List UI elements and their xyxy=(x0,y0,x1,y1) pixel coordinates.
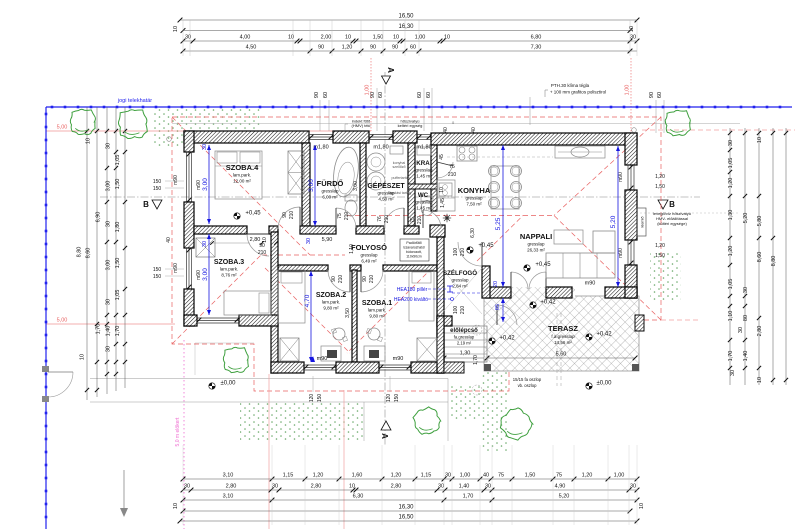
svg-text:10: 10 xyxy=(757,377,763,383)
svg-text:20: 20 xyxy=(493,281,499,287)
svg-text:30: 30 xyxy=(306,238,312,244)
svg-text:gresslap: gresslap xyxy=(465,196,483,201)
svg-text:m90: m90 xyxy=(173,175,179,185)
svg-text:gresslap: gresslap xyxy=(360,253,378,258)
svg-text:30: 30 xyxy=(272,484,278,490)
svg-text:8,80: 8,80 xyxy=(77,247,83,258)
svg-text:gresslap: gresslap xyxy=(415,200,433,205)
svg-text:210: 210 xyxy=(258,250,267,256)
svg-text:30: 30 xyxy=(630,35,636,41)
svg-text:2,80: 2,80 xyxy=(226,484,237,490)
svg-text:m90: m90 xyxy=(196,180,202,190)
svg-text:16,30: 16,30 xyxy=(398,505,414,511)
svg-text:80: 80 xyxy=(743,315,749,321)
svg-text:4,50 m²: 4,50 m² xyxy=(378,197,394,202)
svg-text:90: 90 xyxy=(392,45,398,51)
svg-text:gresslap: gresslap xyxy=(527,242,545,247)
svg-text:7,50 m²: 7,50 m² xyxy=(466,202,482,207)
svg-text:f.a gresslap: f.a gresslap xyxy=(551,334,575,339)
svg-text:100: 100 xyxy=(453,248,459,257)
svg-text:5,90: 5,90 xyxy=(322,237,333,243)
svg-text:10: 10 xyxy=(86,138,92,144)
svg-text:150: 150 xyxy=(317,394,323,403)
svg-text:30: 30 xyxy=(202,241,208,247)
svg-text:m90: m90 xyxy=(585,281,596,287)
svg-text:m90: m90 xyxy=(173,263,179,273)
svg-text:10: 10 xyxy=(757,137,763,143)
svg-text:2,80: 2,80 xyxy=(391,484,402,490)
svg-text:10: 10 xyxy=(393,35,399,41)
svg-text:1,00: 1,00 xyxy=(614,473,625,479)
svg-text:10: 10 xyxy=(345,35,351,41)
svg-text:±0,00: ±0,00 xyxy=(221,381,237,387)
svg-text:60: 60 xyxy=(378,92,384,98)
svg-text:2,00: 2,00 xyxy=(321,35,332,41)
svg-text:60: 60 xyxy=(417,92,423,98)
svg-text:SZÉLFOGÓ: SZÉLFOGÓ xyxy=(443,269,477,277)
svg-text:150: 150 xyxy=(394,394,400,403)
svg-text:1,50: 1,50 xyxy=(373,35,384,41)
svg-text:+ 100 mm grafitos polisztirol: + 100 mm grafitos polisztirol xyxy=(550,90,606,95)
svg-text:10: 10 xyxy=(80,354,86,360)
svg-text:GÉPÉSZET: GÉPÉSZET xyxy=(367,181,405,190)
svg-text:1,20: 1,20 xyxy=(728,178,734,189)
svg-text:30: 30 xyxy=(445,473,451,479)
svg-text:+0,45: +0,45 xyxy=(535,262,551,268)
svg-text:6,30: 6,30 xyxy=(470,228,476,238)
svg-text:60: 60 xyxy=(410,45,416,51)
svg-text:6,90: 6,90 xyxy=(96,212,102,223)
svg-text:5,00: 5,00 xyxy=(57,125,68,131)
svg-text:3,50: 3,50 xyxy=(345,308,351,318)
svg-text:FOLYOSÓ: FOLYOSÓ xyxy=(351,243,387,252)
svg-text:1,20: 1,20 xyxy=(655,174,665,180)
svg-text:5,25: 5,25 xyxy=(495,217,502,230)
svg-text:6,30: 6,30 xyxy=(353,494,364,500)
svg-text:16,50: 16,50 xyxy=(398,515,414,521)
svg-text:120: 120 xyxy=(309,394,315,403)
svg-text:90: 90 xyxy=(370,45,376,51)
svg-text:2,80: 2,80 xyxy=(311,484,322,490)
svg-text:8,60: 8,60 xyxy=(86,248,92,259)
svg-text:10: 10 xyxy=(439,187,445,193)
svg-text:3,00: 3,00 xyxy=(308,179,315,192)
svg-text:12,00 m²: 12,00 m² xyxy=(233,179,251,184)
svg-text:puffertartály: puffertartály xyxy=(392,176,411,180)
svg-text:bútorozott,: bútorozott, xyxy=(406,250,422,254)
svg-text:m1,80: m1,80 xyxy=(373,145,388,151)
svg-text:15/15 fa oszlop: 15/15 fa oszlop xyxy=(513,377,542,382)
svg-text:TERASZ: TERASZ xyxy=(548,324,578,333)
svg-text:1,05: 1,05 xyxy=(115,290,121,301)
svg-text:90: 90 xyxy=(362,276,368,282)
svg-text:vb. oszlop: vb. oszlop xyxy=(518,383,538,388)
svg-text:4,90: 4,90 xyxy=(555,484,566,490)
svg-text:1,40: 1,40 xyxy=(459,484,470,490)
svg-text:5,20: 5,20 xyxy=(610,215,617,228)
svg-text:B: B xyxy=(669,200,675,209)
svg-text:m90: m90 xyxy=(618,248,624,258)
svg-text:5,60: 5,60 xyxy=(556,352,567,358)
svg-text:1,50: 1,50 xyxy=(655,253,665,259)
svg-text:60: 60 xyxy=(657,92,663,98)
svg-text:210: 210 xyxy=(289,211,295,220)
svg-text:A: A xyxy=(386,67,395,73)
svg-text:30: 30 xyxy=(738,327,744,333)
svg-text:KONYHA: KONYHA xyxy=(458,186,491,195)
svg-text:10: 10 xyxy=(444,35,450,41)
svg-text:2,80: 2,80 xyxy=(250,237,261,243)
svg-text:1,20: 1,20 xyxy=(391,473,402,479)
svg-text:Padlófűtő: Padlófűtő xyxy=(406,241,421,245)
svg-text:150: 150 xyxy=(153,179,162,185)
svg-text:gresslap: gresslap xyxy=(377,191,395,196)
svg-text:100: 100 xyxy=(453,306,459,315)
svg-text:210: 210 xyxy=(369,275,375,284)
svg-text:1,60: 1,60 xyxy=(352,473,363,479)
svg-text:30: 30 xyxy=(106,143,112,149)
svg-text:1,20: 1,20 xyxy=(655,243,665,249)
svg-text:gresslap: gresslap xyxy=(451,278,469,283)
svg-text:75: 75 xyxy=(556,473,562,479)
svg-text:1,50: 1,50 xyxy=(655,184,665,190)
svg-text:fa.gresslap: fa.gresslap xyxy=(454,335,475,340)
svg-text:45: 45 xyxy=(439,154,445,160)
svg-text:1,70: 1,70 xyxy=(728,351,734,362)
svg-text:1,15: 1,15 xyxy=(283,473,294,479)
svg-text:30: 30 xyxy=(202,144,208,150)
svg-text:4,00: 4,00 xyxy=(240,35,251,41)
svg-text:30: 30 xyxy=(106,346,112,352)
svg-text:m90: m90 xyxy=(196,270,202,280)
svg-text:120: 120 xyxy=(386,394,392,403)
svg-text:1,05: 1,05 xyxy=(728,158,734,169)
svg-text:NAPPALI: NAPPALI xyxy=(520,232,552,241)
svg-text:4,50: 4,50 xyxy=(246,45,257,51)
svg-text:210: 210 xyxy=(417,216,423,225)
svg-text:1,00: 1,00 xyxy=(415,35,426,41)
svg-text:150: 150 xyxy=(153,274,162,280)
svg-text:lam.park.: lam.park. xyxy=(368,308,387,313)
svg-text:5,00: 5,00 xyxy=(57,318,68,324)
svg-text:9,80 m²: 9,80 m² xyxy=(323,306,339,311)
svg-text:m90: m90 xyxy=(393,356,404,362)
svg-text:+0,42: +0,42 xyxy=(596,332,612,338)
svg-text:1,15: 1,15 xyxy=(421,473,432,479)
svg-text:6,00 m²: 6,00 m² xyxy=(322,195,338,200)
svg-text:10: 10 xyxy=(173,26,179,32)
svg-text:1,50: 1,50 xyxy=(525,473,536,479)
svg-text:szellőző: szellőző xyxy=(393,165,406,169)
svg-text:1,30: 1,30 xyxy=(460,351,471,357)
svg-text:75: 75 xyxy=(337,213,343,219)
svg-text:30: 30 xyxy=(438,484,444,490)
svg-text:30: 30 xyxy=(106,299,112,305)
svg-text:3,00: 3,00 xyxy=(202,178,209,191)
svg-text:keltéri egység: keltéri egység xyxy=(398,123,423,128)
svg-text:gresslap: gresslap xyxy=(321,189,339,194)
svg-text:gresslap: gresslap xyxy=(415,168,433,173)
svg-text:+0,42: +0,42 xyxy=(540,300,556,306)
svg-text:2,84 m²: 2,84 m² xyxy=(452,284,468,289)
svg-text:210: 210 xyxy=(460,248,466,257)
svg-text:10: 10 xyxy=(173,503,179,509)
svg-text:76: 76 xyxy=(377,216,383,222)
svg-text:3,00: 3,00 xyxy=(106,181,112,192)
svg-text:jogi telekhatár: jogi telekhatár xyxy=(117,98,152,104)
svg-text:8,60: 8,60 xyxy=(757,252,763,263)
svg-text:3,00: 3,00 xyxy=(202,268,209,281)
svg-text:150: 150 xyxy=(153,267,162,273)
svg-text:1,00: 1,00 xyxy=(460,473,471,479)
svg-text:30: 30 xyxy=(485,484,491,490)
svg-text:85: 85 xyxy=(495,304,501,310)
svg-text:150: 150 xyxy=(153,186,162,192)
svg-text:SZOBA.4: SZOBA.4 xyxy=(226,163,259,172)
svg-text:A: A xyxy=(380,433,389,439)
svg-text:1,45 m²: 1,45 m² xyxy=(416,206,432,211)
svg-text:16,50: 16,50 xyxy=(398,14,414,20)
svg-text:WC: WC xyxy=(418,192,429,199)
svg-text:5,80: 5,80 xyxy=(757,216,763,227)
svg-text:1,30: 1,30 xyxy=(728,210,734,221)
svg-text:90: 90 xyxy=(259,243,265,249)
svg-text:6,49 m²: 6,49 m² xyxy=(361,259,377,264)
svg-text:1,80: 1,80 xyxy=(115,222,121,233)
svg-text:1,00: 1,00 xyxy=(365,85,371,96)
svg-text:60: 60 xyxy=(323,92,329,98)
svg-text:+0,42: +0,42 xyxy=(499,336,515,342)
svg-text:m1,80: m1,80 xyxy=(416,145,431,151)
svg-text:HEA180 pillér: HEA180 pillér xyxy=(397,287,428,293)
svg-text:40: 40 xyxy=(471,127,477,133)
svg-text:5,0 m előkert: 5,0 m előkert xyxy=(175,417,181,447)
svg-text:KRA: KRA xyxy=(416,160,430,167)
svg-text:FÜRDŐ: FÜRDŐ xyxy=(317,179,344,188)
svg-text:/csavarozható/: /csavarozható/ xyxy=(403,246,425,250)
svg-text:1,20: 1,20 xyxy=(342,45,353,51)
svg-text:1,40: 1,40 xyxy=(106,326,112,337)
svg-text:90: 90 xyxy=(282,212,288,218)
svg-text:4,70: 4,70 xyxy=(304,294,311,307)
svg-text:1,70: 1,70 xyxy=(473,355,479,365)
svg-text:90: 90 xyxy=(314,92,320,98)
svg-text:1,50: 1,50 xyxy=(115,179,121,190)
svg-text:90: 90 xyxy=(649,92,655,98)
svg-text:kiemlő: kiemlő xyxy=(641,217,645,228)
svg-text:2,80: 2,80 xyxy=(757,326,763,337)
svg-text:9,80 m²: 9,80 m² xyxy=(369,314,385,319)
svg-text:40: 40 xyxy=(166,237,172,243)
svg-text:1,10: 1,10 xyxy=(349,244,355,254)
svg-text:±0,00: ±0,00 xyxy=(597,381,613,387)
svg-text:(HMV) téki: (HMV) téki xyxy=(352,123,371,128)
svg-text:10: 10 xyxy=(349,484,355,490)
svg-text:8,80: 8,80 xyxy=(771,256,777,267)
svg-text:1,10: 1,10 xyxy=(728,311,734,322)
svg-text:1,70: 1,70 xyxy=(115,326,121,337)
svg-text:lam.park.: lam.park. xyxy=(322,300,341,305)
svg-text:30: 30 xyxy=(730,370,736,376)
svg-text:lam.park.: lam.park. xyxy=(220,267,239,272)
svg-text:1,00: 1,00 xyxy=(625,85,631,96)
svg-text:1,20: 1,20 xyxy=(313,473,324,479)
svg-text:SZOBA.2: SZOBA.2 xyxy=(316,292,346,299)
svg-text:210: 210 xyxy=(448,172,457,178)
svg-text:210: 210 xyxy=(460,306,466,315)
svg-text:HEA200 kiváltó: HEA200 kiváltó xyxy=(394,297,428,303)
svg-text:30: 30 xyxy=(106,221,112,227)
svg-text:3,10: 3,10 xyxy=(223,494,234,500)
svg-text:8,76 m²: 8,76 m² xyxy=(221,273,237,278)
svg-text:1,45: 1,45 xyxy=(440,198,446,208)
svg-text:PTH.30 klíma tégla: PTH.30 klíma tégla xyxy=(551,83,590,88)
svg-text:+0,45: +0,45 xyxy=(245,211,261,217)
svg-text:3,00: 3,00 xyxy=(353,181,359,191)
svg-text:110x90cm: 110x90cm xyxy=(406,255,422,259)
svg-text:26,33 m²: 26,33 m² xyxy=(527,248,545,253)
svg-text:SZOBA.1: SZOBA.1 xyxy=(362,300,392,307)
svg-text:1,20: 1,20 xyxy=(582,473,593,479)
svg-text:10: 10 xyxy=(639,503,645,509)
svg-text:5,20: 5,20 xyxy=(743,213,749,224)
svg-text:30: 30 xyxy=(728,140,734,146)
svg-text:2,19 m²: 2,19 m² xyxy=(457,341,472,346)
svg-text:75: 75 xyxy=(449,164,455,170)
svg-text:5,20: 5,20 xyxy=(559,494,570,500)
svg-text:lam.park.: lam.park. xyxy=(233,173,252,178)
svg-text:30: 30 xyxy=(743,287,749,293)
svg-text:75: 75 xyxy=(498,473,504,479)
svg-text:(kültéri egysége): (kültéri egysége) xyxy=(657,221,687,226)
svg-text:1,45 m²: 1,45 m² xyxy=(416,174,432,179)
svg-text:40: 40 xyxy=(483,473,489,479)
svg-text:16,30: 16,30 xyxy=(398,24,414,30)
svg-text:1,05: 1,05 xyxy=(115,155,121,166)
svg-text:1,50: 1,50 xyxy=(115,258,121,269)
svg-text:1,20: 1,20 xyxy=(728,246,734,257)
svg-text:1,70: 1,70 xyxy=(463,494,474,500)
svg-text:1,05: 1,05 xyxy=(728,279,734,290)
svg-text:1,40: 1,40 xyxy=(743,351,749,362)
svg-text:6,80: 6,80 xyxy=(531,35,542,41)
svg-text:30: 30 xyxy=(630,484,636,490)
svg-text:előlépcső: előlépcső xyxy=(450,328,478,334)
svg-text:210: 210 xyxy=(338,275,344,284)
svg-text:3,10: 3,10 xyxy=(223,473,234,479)
svg-text:SZOBA.3: SZOBA.3 xyxy=(214,259,244,266)
svg-text:90: 90 xyxy=(331,276,337,282)
svg-text:60: 60 xyxy=(426,92,432,98)
svg-text:+0,45: +0,45 xyxy=(478,243,494,249)
svg-text:90: 90 xyxy=(318,45,324,51)
svg-text:30: 30 xyxy=(184,484,190,490)
svg-text:B: B xyxy=(143,200,149,209)
svg-text:m90: m90 xyxy=(618,172,624,182)
svg-text:7,30: 7,30 xyxy=(531,45,542,51)
svg-text:3,00: 3,00 xyxy=(106,260,112,271)
svg-text:75: 75 xyxy=(410,217,416,223)
svg-text:40: 40 xyxy=(443,127,449,133)
svg-text:210: 210 xyxy=(384,215,390,224)
svg-text:m90: m90 xyxy=(317,356,328,362)
